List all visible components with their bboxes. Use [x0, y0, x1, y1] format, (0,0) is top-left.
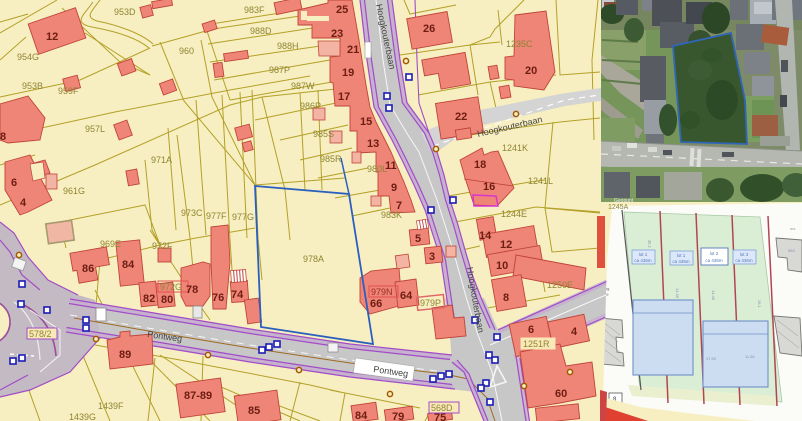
svg-text:977G: 977G [232, 212, 254, 222]
svg-text:87-89: 87-89 [184, 390, 212, 402]
svg-text:985S: 985S [313, 129, 334, 139]
svg-text:1439F: 1439F [98, 401, 124, 411]
svg-text:1244E: 1244E [501, 209, 527, 219]
svg-text:21: 21 [347, 44, 359, 56]
svg-text:988D: 988D [250, 26, 272, 36]
svg-text:953D: 953D [114, 7, 136, 17]
svg-text:959F: 959F [58, 86, 79, 96]
svg-text:79: 79 [392, 411, 404, 421]
svg-text:14.46: 14.46 [675, 288, 680, 299]
svg-text:22: 22 [455, 111, 467, 123]
svg-text:lot 2: lot 2 [710, 251, 719, 256]
svg-text:986P: 986P [300, 101, 321, 111]
svg-text:8: 8 [0, 131, 6, 143]
svg-text:60: 60 [555, 388, 567, 400]
svg-text:960: 960 [179, 46, 194, 56]
svg-text:13: 13 [367, 138, 379, 150]
svg-text:1251R: 1251R [523, 339, 550, 349]
svg-text:75: 75 [434, 412, 446, 421]
svg-text:1241K: 1241K [502, 143, 528, 153]
svg-text:1245A: 1245A [608, 204, 629, 211]
svg-text:977F: 977F [206, 211, 227, 221]
svg-text:7: 7 [396, 200, 402, 212]
svg-text:1439G: 1439G [69, 412, 96, 421]
svg-text:17: 17 [338, 91, 350, 103]
svg-text:10: 10 [496, 260, 508, 272]
svg-text:lot 3: lot 3 [740, 252, 749, 257]
svg-text:973C: 973C [181, 208, 203, 218]
svg-text:972F: 972F [152, 241, 173, 251]
svg-text:985R: 985R [320, 154, 342, 164]
svg-text:978A: 978A [303, 254, 324, 264]
svg-text:89: 89 [119, 349, 131, 361]
svg-text:16: 16 [483, 181, 495, 193]
svg-text:lot 1: lot 1 [677, 253, 686, 258]
svg-text:36.2: 36.2 [647, 240, 652, 249]
svg-text:969E: 969E [100, 239, 121, 249]
svg-text:979P: 979P [420, 298, 441, 308]
svg-text:86: 86 [82, 263, 94, 275]
svg-text:9: 9 [391, 182, 397, 194]
svg-text:17.50: 17.50 [706, 356, 717, 361]
svg-text:ca 436m: ca 436m [705, 258, 723, 263]
svg-text:76: 76 [212, 292, 224, 304]
svg-text:ca 436m: ca 436m [634, 258, 652, 263]
svg-text:14: 14 [479, 230, 492, 242]
svg-text:20: 20 [525, 65, 537, 77]
svg-text:26: 26 [423, 23, 435, 35]
svg-text:1250E: 1250E [547, 280, 573, 290]
svg-text:12: 12 [500, 239, 512, 251]
svg-text:lot 1: lot 1 [639, 252, 648, 257]
svg-text:563: 563 [788, 248, 795, 253]
svg-text:3: 3 [429, 251, 435, 263]
svg-text:82: 82 [143, 293, 155, 305]
svg-text:64: 64 [400, 290, 413, 302]
svg-text:987W: 987W [291, 81, 315, 91]
svg-text:987P: 987P [269, 65, 290, 75]
svg-text:12: 12 [46, 31, 58, 43]
svg-text:ca 436m: ca 436m [672, 259, 690, 264]
svg-text:6: 6 [528, 324, 534, 336]
svg-text:28.1: 28.1 [757, 300, 762, 309]
svg-text:5: 5 [415, 233, 421, 245]
svg-text:972G: 972G [160, 282, 182, 292]
svg-text:80: 80 [161, 294, 173, 306]
svg-text:ca 436m: ca 436m [735, 258, 753, 263]
svg-text:18: 18 [474, 159, 486, 171]
svg-text:979N: 979N [371, 287, 393, 297]
svg-text:11: 11 [385, 160, 397, 172]
svg-text:971A: 971A [151, 155, 172, 165]
svg-text:983F: 983F [244, 5, 265, 15]
svg-text:953B: 953B [22, 81, 43, 91]
svg-text:25: 25 [336, 4, 348, 16]
svg-text:23: 23 [331, 28, 343, 40]
svg-text:8: 8 [503, 292, 509, 304]
svg-text:6: 6 [11, 177, 17, 189]
svg-text:78: 78 [186, 284, 198, 296]
svg-text:1235C: 1235C [506, 39, 533, 49]
svg-text:957L: 957L [85, 124, 105, 134]
svg-text:19: 19 [342, 67, 354, 79]
svg-text:578/2: 578/2 [29, 329, 52, 339]
svg-text:1241L: 1241L [528, 176, 553, 186]
svg-text:74: 74 [231, 289, 244, 301]
svg-text:14.46: 14.46 [711, 290, 716, 301]
svg-text:85: 85 [248, 405, 260, 417]
svg-text:961G: 961G [63, 186, 85, 196]
svg-text:4: 4 [571, 326, 578, 338]
svg-text:4: 4 [20, 197, 27, 209]
svg-text:988H: 988H [277, 41, 299, 51]
svg-text:954G: 954G [17, 52, 39, 62]
svg-text:15: 15 [360, 116, 372, 128]
svg-text:11.80: 11.80 [745, 354, 755, 359]
svg-text:66: 66 [370, 298, 382, 310]
svg-text:84: 84 [122, 259, 135, 271]
svg-text:ms: ms [790, 226, 795, 231]
svg-text:84: 84 [355, 410, 368, 421]
